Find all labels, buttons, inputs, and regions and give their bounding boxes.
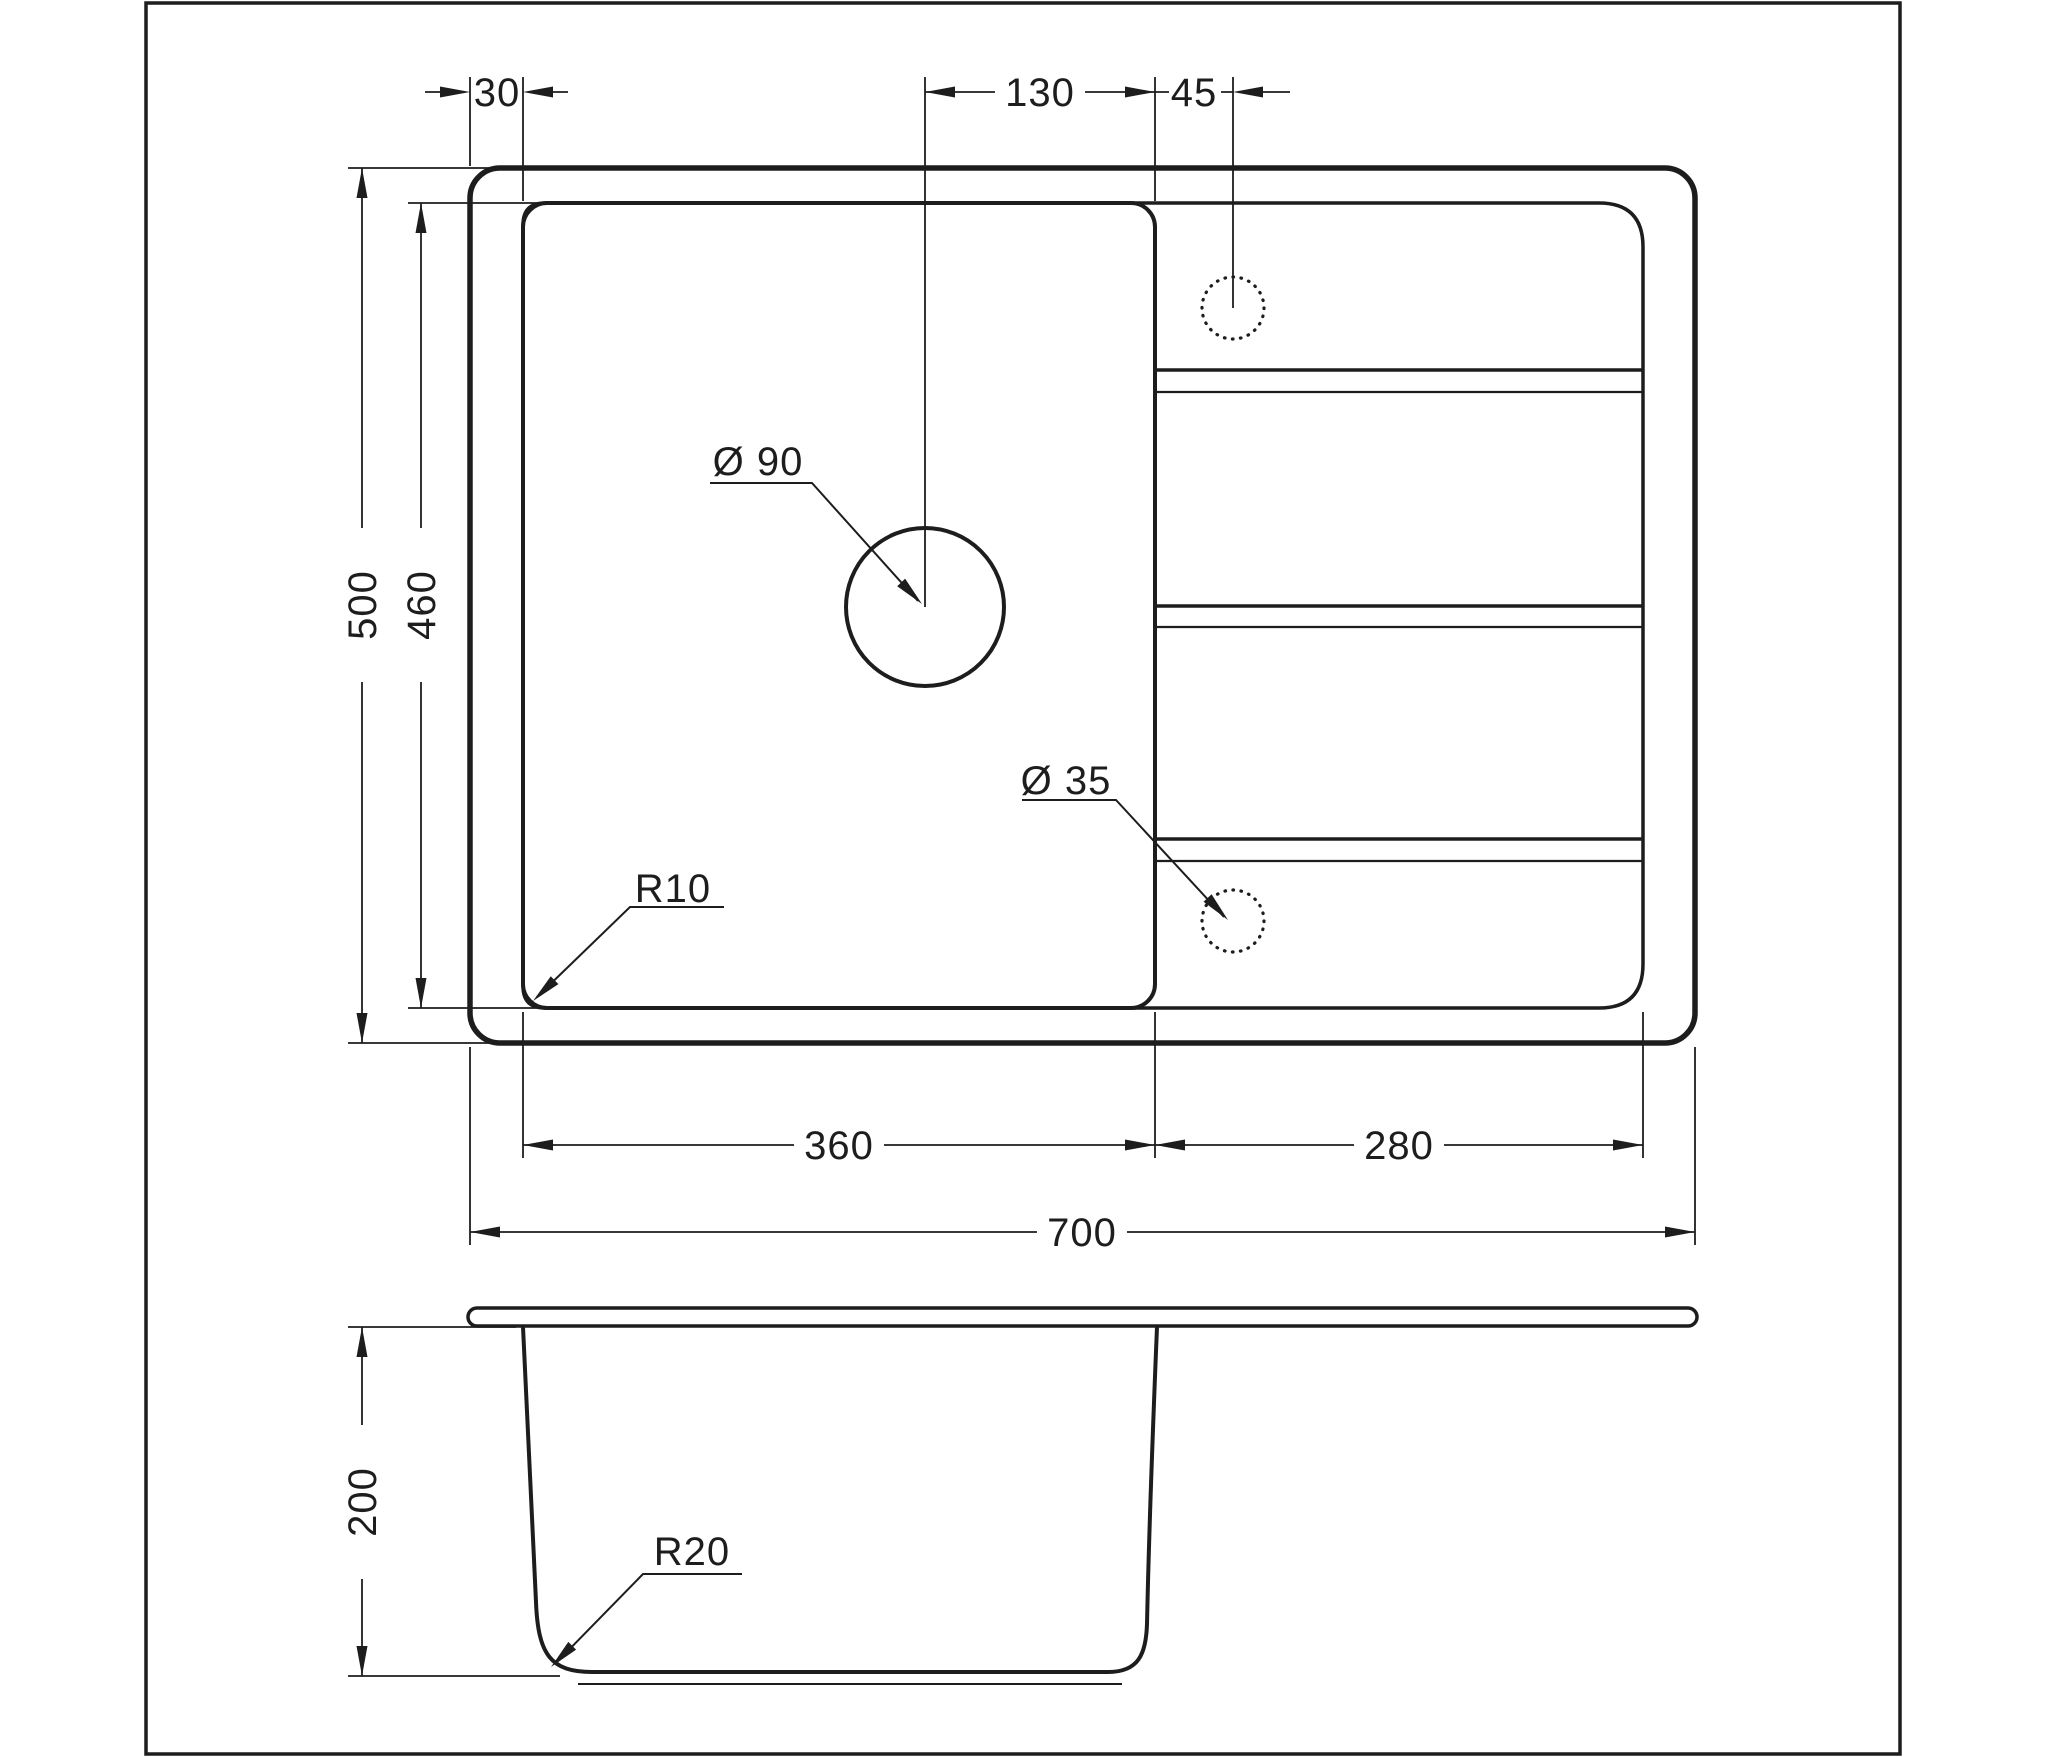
sink-technical-drawing: 30 130 45 500 460 360 280 700 200 Ø 90 Ø… xyxy=(0,0,2048,1757)
dimension-arrow xyxy=(470,1227,500,1238)
dimension-arrow xyxy=(416,203,427,233)
dimension-arrow xyxy=(357,168,368,198)
dimension-arrow xyxy=(1613,1140,1643,1151)
dimension-arrow xyxy=(357,1327,368,1357)
callout-drain-diameter: Ø 90 xyxy=(713,440,804,484)
callout-bowl-radius: R10 xyxy=(635,867,711,911)
callout-bottom-radius: R20 xyxy=(654,1530,730,1574)
dimension-arrow xyxy=(357,1013,368,1043)
dimension-arrow xyxy=(416,978,427,1008)
dim-label-rim-offset: 30 xyxy=(474,71,521,115)
dimension-arrow xyxy=(523,1140,553,1151)
dimension-arrow xyxy=(1155,1140,1185,1151)
dimension-arrow xyxy=(357,1646,368,1676)
bottom-radius-callout-leader xyxy=(556,1574,742,1663)
dimension-arrow xyxy=(1125,87,1155,98)
dim-label-bowl-depth: 200 xyxy=(341,1467,385,1537)
dim-label-bowl-front-back: 460 xyxy=(400,570,444,640)
dimension-arrow xyxy=(440,87,470,98)
dim-label-drainboard-width: 280 xyxy=(1364,1124,1434,1168)
dimension-arrow xyxy=(523,87,553,98)
dim-label-tap-offset: 45 xyxy=(1171,71,1218,115)
dim-label-bowl-width: 360 xyxy=(804,1124,874,1168)
dim-label-overall-width: 700 xyxy=(1047,1211,1117,1255)
dim-label-drain-to-edge: 130 xyxy=(1005,71,1075,115)
dimension-arrow xyxy=(925,87,955,98)
dimension-arrow xyxy=(1233,87,1263,98)
dim-label-overall-depth: 500 xyxy=(341,570,385,640)
section-bowl-outline xyxy=(523,1327,1157,1672)
callout-tap-diameter: Ø 35 xyxy=(1021,759,1112,803)
dimension-arrow xyxy=(1665,1227,1695,1238)
section-deck-outline xyxy=(468,1308,1697,1326)
dimension-arrow xyxy=(1125,1140,1155,1151)
technical-drawing-page: 30 130 45 500 460 360 280 700 200 Ø 90 Ø… xyxy=(0,0,2048,1757)
